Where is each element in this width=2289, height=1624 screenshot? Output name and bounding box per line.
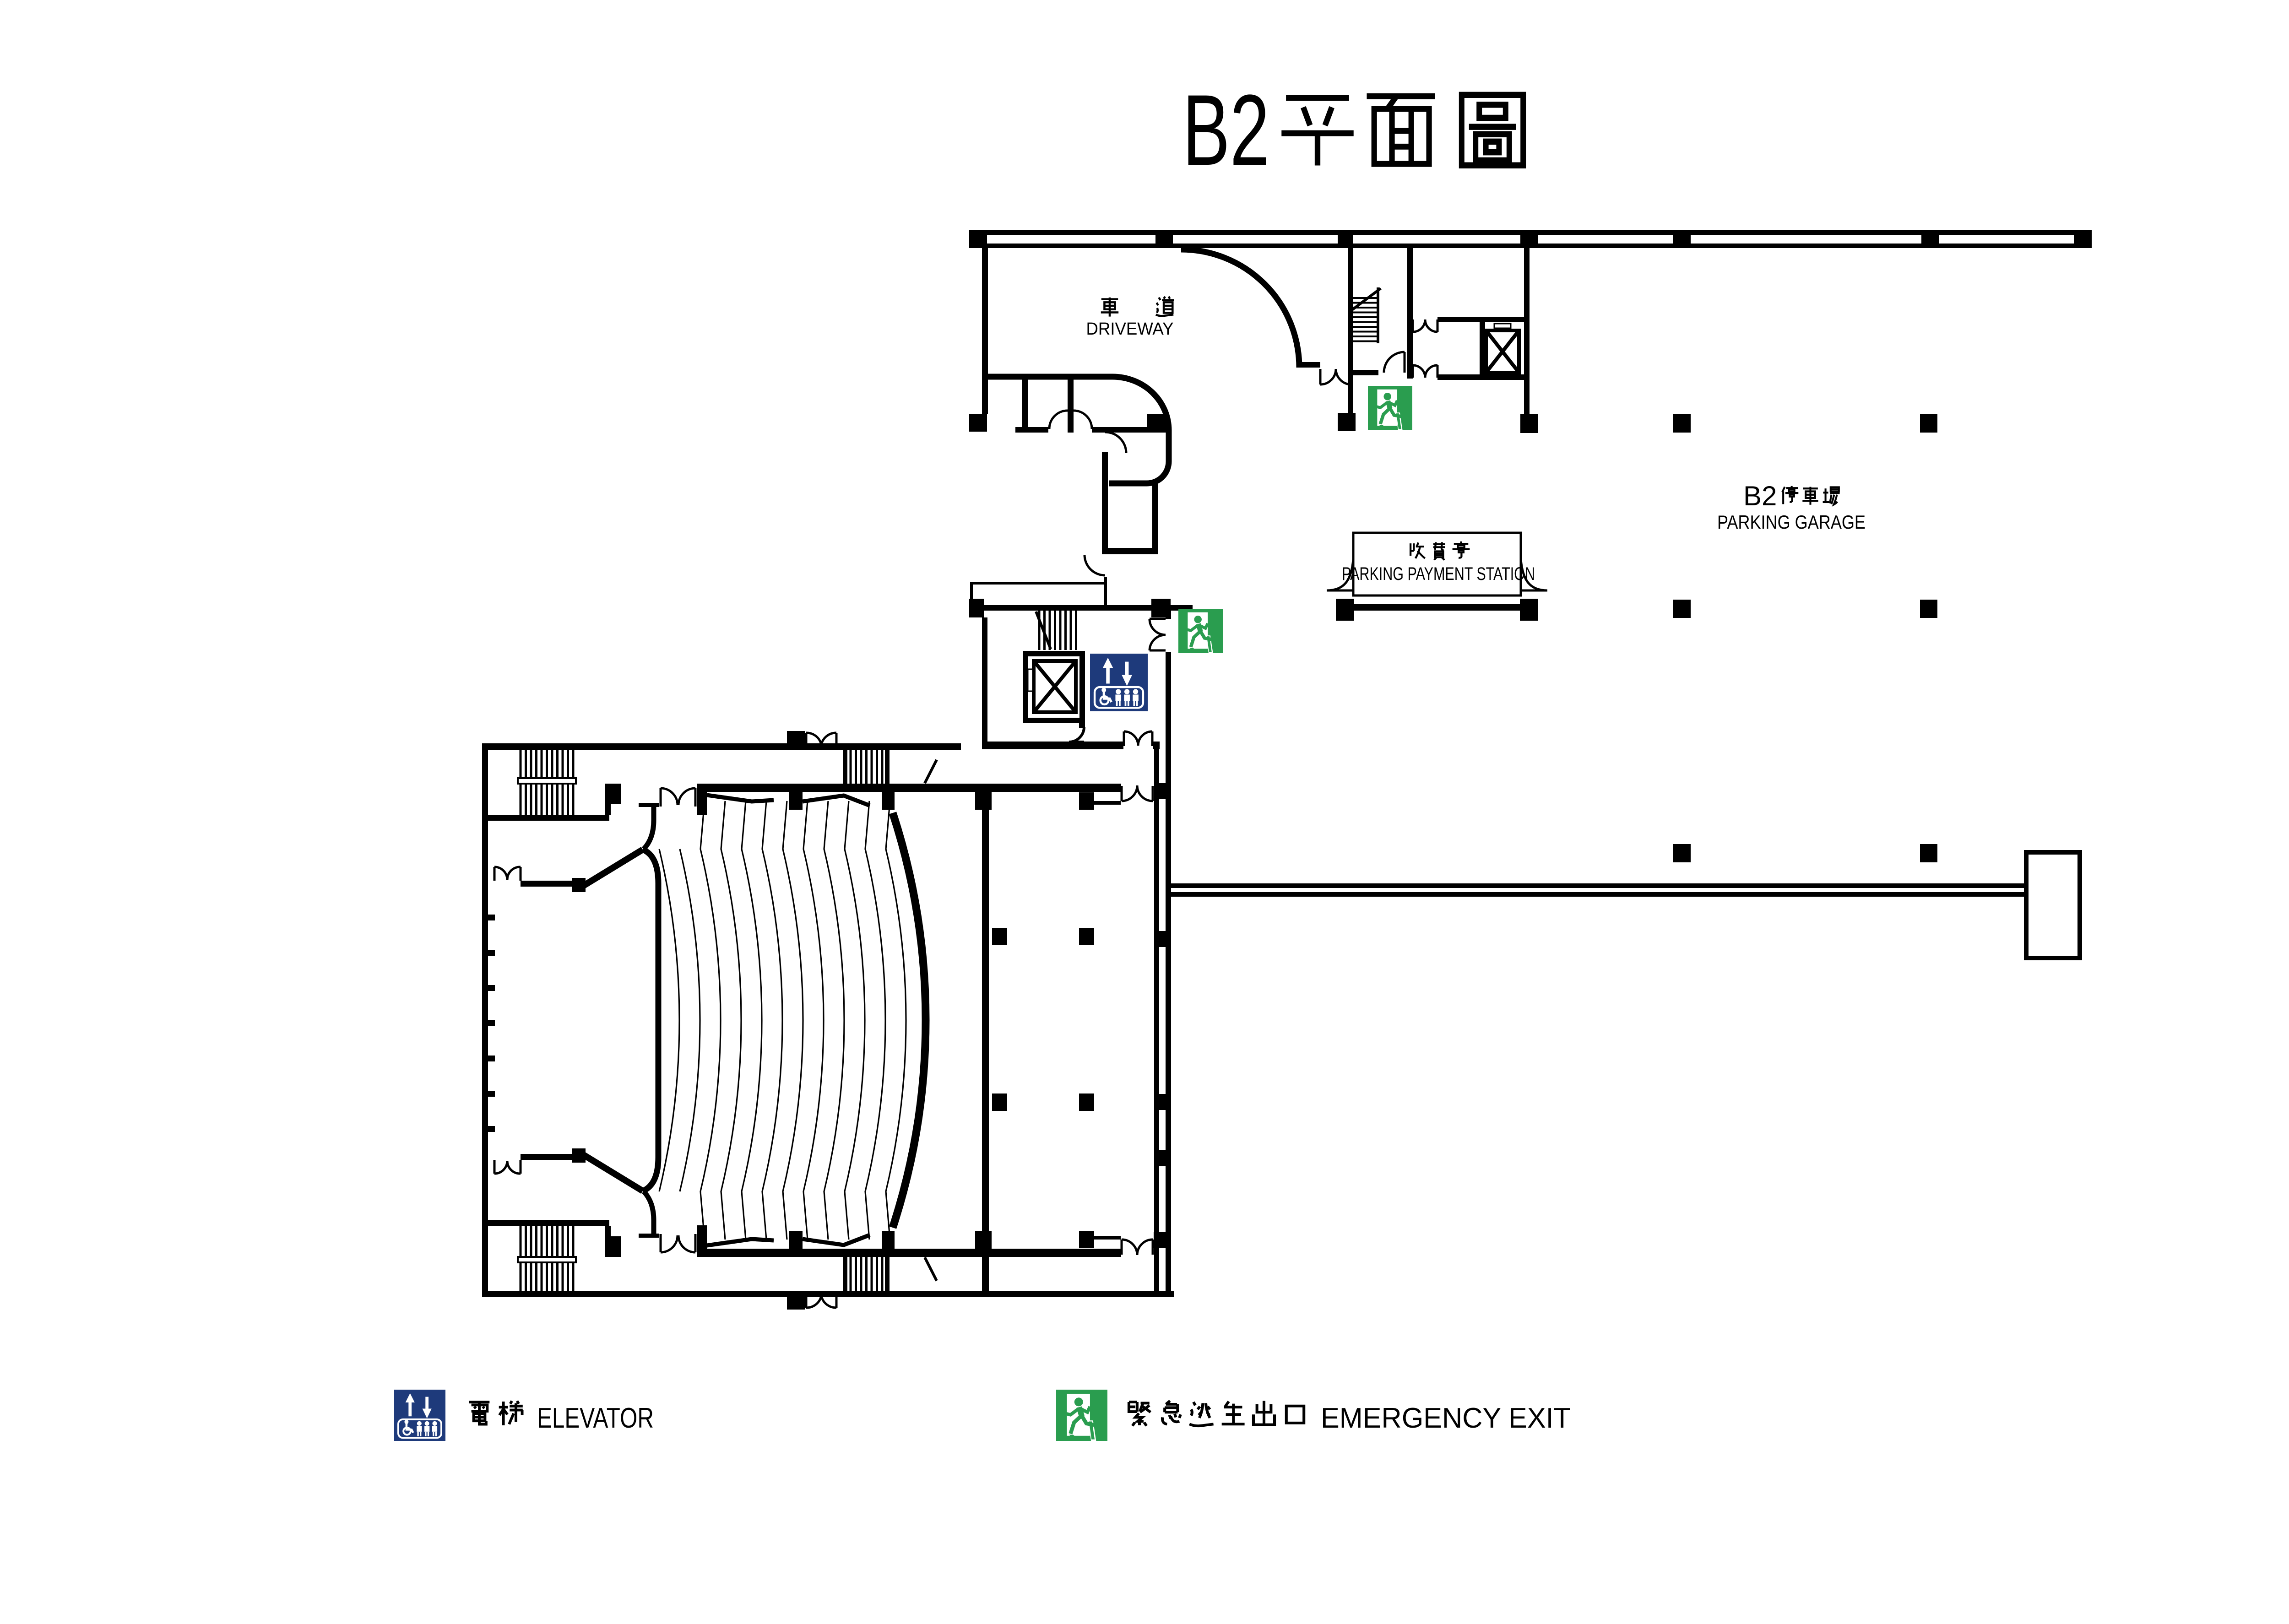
svg-text:ELEVATOR: ELEVATOR (537, 1402, 654, 1434)
svg-text:PARKING PAYMENT STATION: PARKING PAYMENT STATION (1342, 564, 1535, 584)
svg-text:B2: B2 (1743, 481, 1777, 511)
svg-text:EMERGENCY EXIT: EMERGENCY EXIT (1321, 1402, 1571, 1434)
svg-text:B2: B2 (1182, 74, 1269, 186)
svg-text:PARKING GARAGE: PARKING GARAGE (1717, 511, 1866, 533)
svg-text:DRIVEWAY: DRIVEWAY (1086, 319, 1174, 339)
